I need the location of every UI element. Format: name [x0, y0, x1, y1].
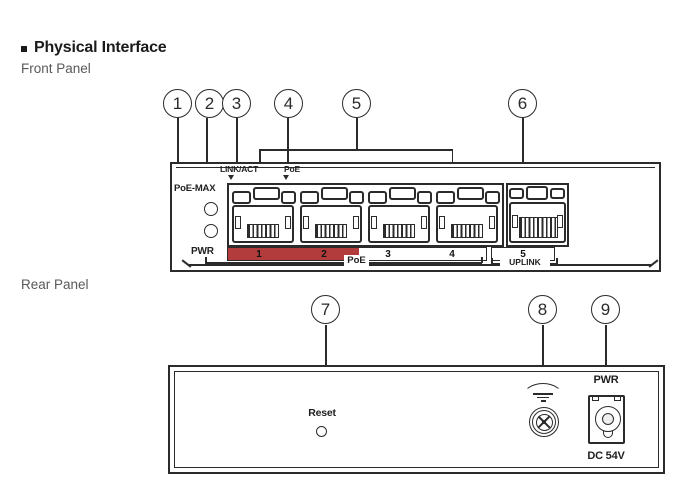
- port-number-2: 2: [314, 249, 334, 260]
- uplink-led-icon: [509, 188, 524, 199]
- rj45-port-1: [229, 185, 297, 245]
- port3-poe-led-icon: [417, 191, 432, 204]
- jack-pin-icon: [602, 413, 614, 425]
- port3-jack-icon: [368, 205, 430, 243]
- rj45-port-3: [365, 185, 433, 245]
- poe-pointer-icon: [283, 175, 289, 180]
- poe-group-label: PoE: [344, 255, 369, 266]
- poe-highlight-bar: [228, 248, 359, 260]
- uplink-bracket-tick-right: [556, 258, 558, 264]
- latch-icon: [371, 216, 377, 229]
- pins-icon: [383, 224, 415, 238]
- dc-voltage-label: DC 54V: [583, 450, 629, 462]
- jack-notch-icon: [614, 396, 621, 401]
- rj45-port-uplink: [508, 185, 567, 245]
- page-title: Physical Interface: [34, 39, 166, 57]
- pins-icon: [451, 224, 483, 238]
- poe-max-label: PoE-MAX: [174, 183, 215, 194]
- port2-clip-icon: [321, 187, 348, 200]
- pins-icon: [315, 224, 347, 238]
- bullet-icon: [21, 46, 27, 52]
- latch-icon: [285, 216, 291, 229]
- port1-jack-icon: [232, 205, 294, 243]
- uplink-clip-icon: [526, 186, 548, 200]
- leader-line-5-stem: [356, 118, 358, 150]
- callout-9: 9: [591, 295, 620, 324]
- port-number-3: 3: [378, 249, 398, 260]
- leader-line-5-bracket: [259, 149, 453, 151]
- section-heading: Physical Interface: [21, 39, 166, 57]
- latch-icon: [303, 216, 309, 229]
- port1-clip-icon: [253, 187, 280, 200]
- uplink-bracket-line-left: [491, 263, 500, 265]
- ground-bar-1: [533, 393, 553, 395]
- ground-bar-2: [537, 397, 549, 399]
- link-act-pointer-icon: [228, 175, 234, 180]
- reset-label: Reset: [297, 407, 347, 419]
- pwr-led-icon: [204, 224, 218, 238]
- rj45-port-2: [297, 185, 365, 245]
- poe-led-label: PoE: [284, 164, 300, 174]
- poe-bracket-tick-right: [481, 257, 483, 263]
- port4-link-led-icon: [436, 191, 455, 204]
- callout-8: 8: [528, 295, 557, 324]
- reset-hole-icon: [316, 426, 327, 437]
- callout-3: 3: [222, 89, 251, 118]
- rear-panel-label: Rear Panel: [21, 277, 89, 292]
- front-panel-label: Front Panel: [21, 61, 91, 76]
- port2-jack-icon: [300, 205, 362, 243]
- latch-icon: [439, 216, 445, 229]
- pins-icon: [247, 224, 279, 238]
- latch-icon: [489, 216, 495, 229]
- uplink-jack-icon: [509, 202, 566, 243]
- uplink-led-icon: [550, 188, 565, 199]
- latch-icon: [235, 216, 241, 229]
- port4-clip-icon: [457, 187, 484, 200]
- jack-notch-bottom-icon: [603, 431, 613, 438]
- callout-4: 4: [274, 89, 303, 118]
- front-panel-bottom-lip: [189, 264, 651, 266]
- port4-jack-icon: [436, 205, 498, 243]
- latch-icon: [353, 216, 359, 229]
- port1-poe-led-icon: [281, 191, 296, 204]
- latch-icon: [512, 215, 518, 228]
- rj45-port-4: [433, 185, 501, 245]
- callout-5: 5: [342, 89, 371, 118]
- poe-bracket-line-right: [369, 262, 482, 264]
- rear-pwr-label: PWR: [586, 374, 626, 386]
- poe-max-led-icon: [204, 202, 218, 216]
- port1-link-led-icon: [232, 191, 251, 204]
- ground-bar-3: [541, 400, 546, 402]
- port-number-4: 4: [442, 249, 462, 260]
- port2-link-led-icon: [300, 191, 319, 204]
- pwr-label: PWR: [191, 246, 214, 257]
- port-number-1: 1: [249, 249, 269, 260]
- pins-icon: [519, 217, 558, 238]
- jack-notch-icon: [592, 396, 599, 401]
- latch-icon: [421, 216, 427, 229]
- callout-1: 1: [163, 89, 192, 118]
- callout-7: 7: [311, 295, 340, 324]
- uplink-group-label: UPLINK: [500, 257, 550, 267]
- port2-poe-led-icon: [349, 191, 364, 204]
- physical-interface-page: Physical Interface Front Panel Rear Pane…: [0, 0, 700, 489]
- port3-clip-icon: [389, 187, 416, 200]
- poe-bracket-line-left: [205, 262, 344, 264]
- dc-jack-icon: [588, 395, 625, 444]
- port4-poe-led-icon: [485, 191, 500, 204]
- callout-6: 6: [508, 89, 537, 118]
- link-act-label: LINK/ACT: [220, 164, 258, 174]
- callout-2: 2: [195, 89, 224, 118]
- port3-link-led-icon: [368, 191, 387, 204]
